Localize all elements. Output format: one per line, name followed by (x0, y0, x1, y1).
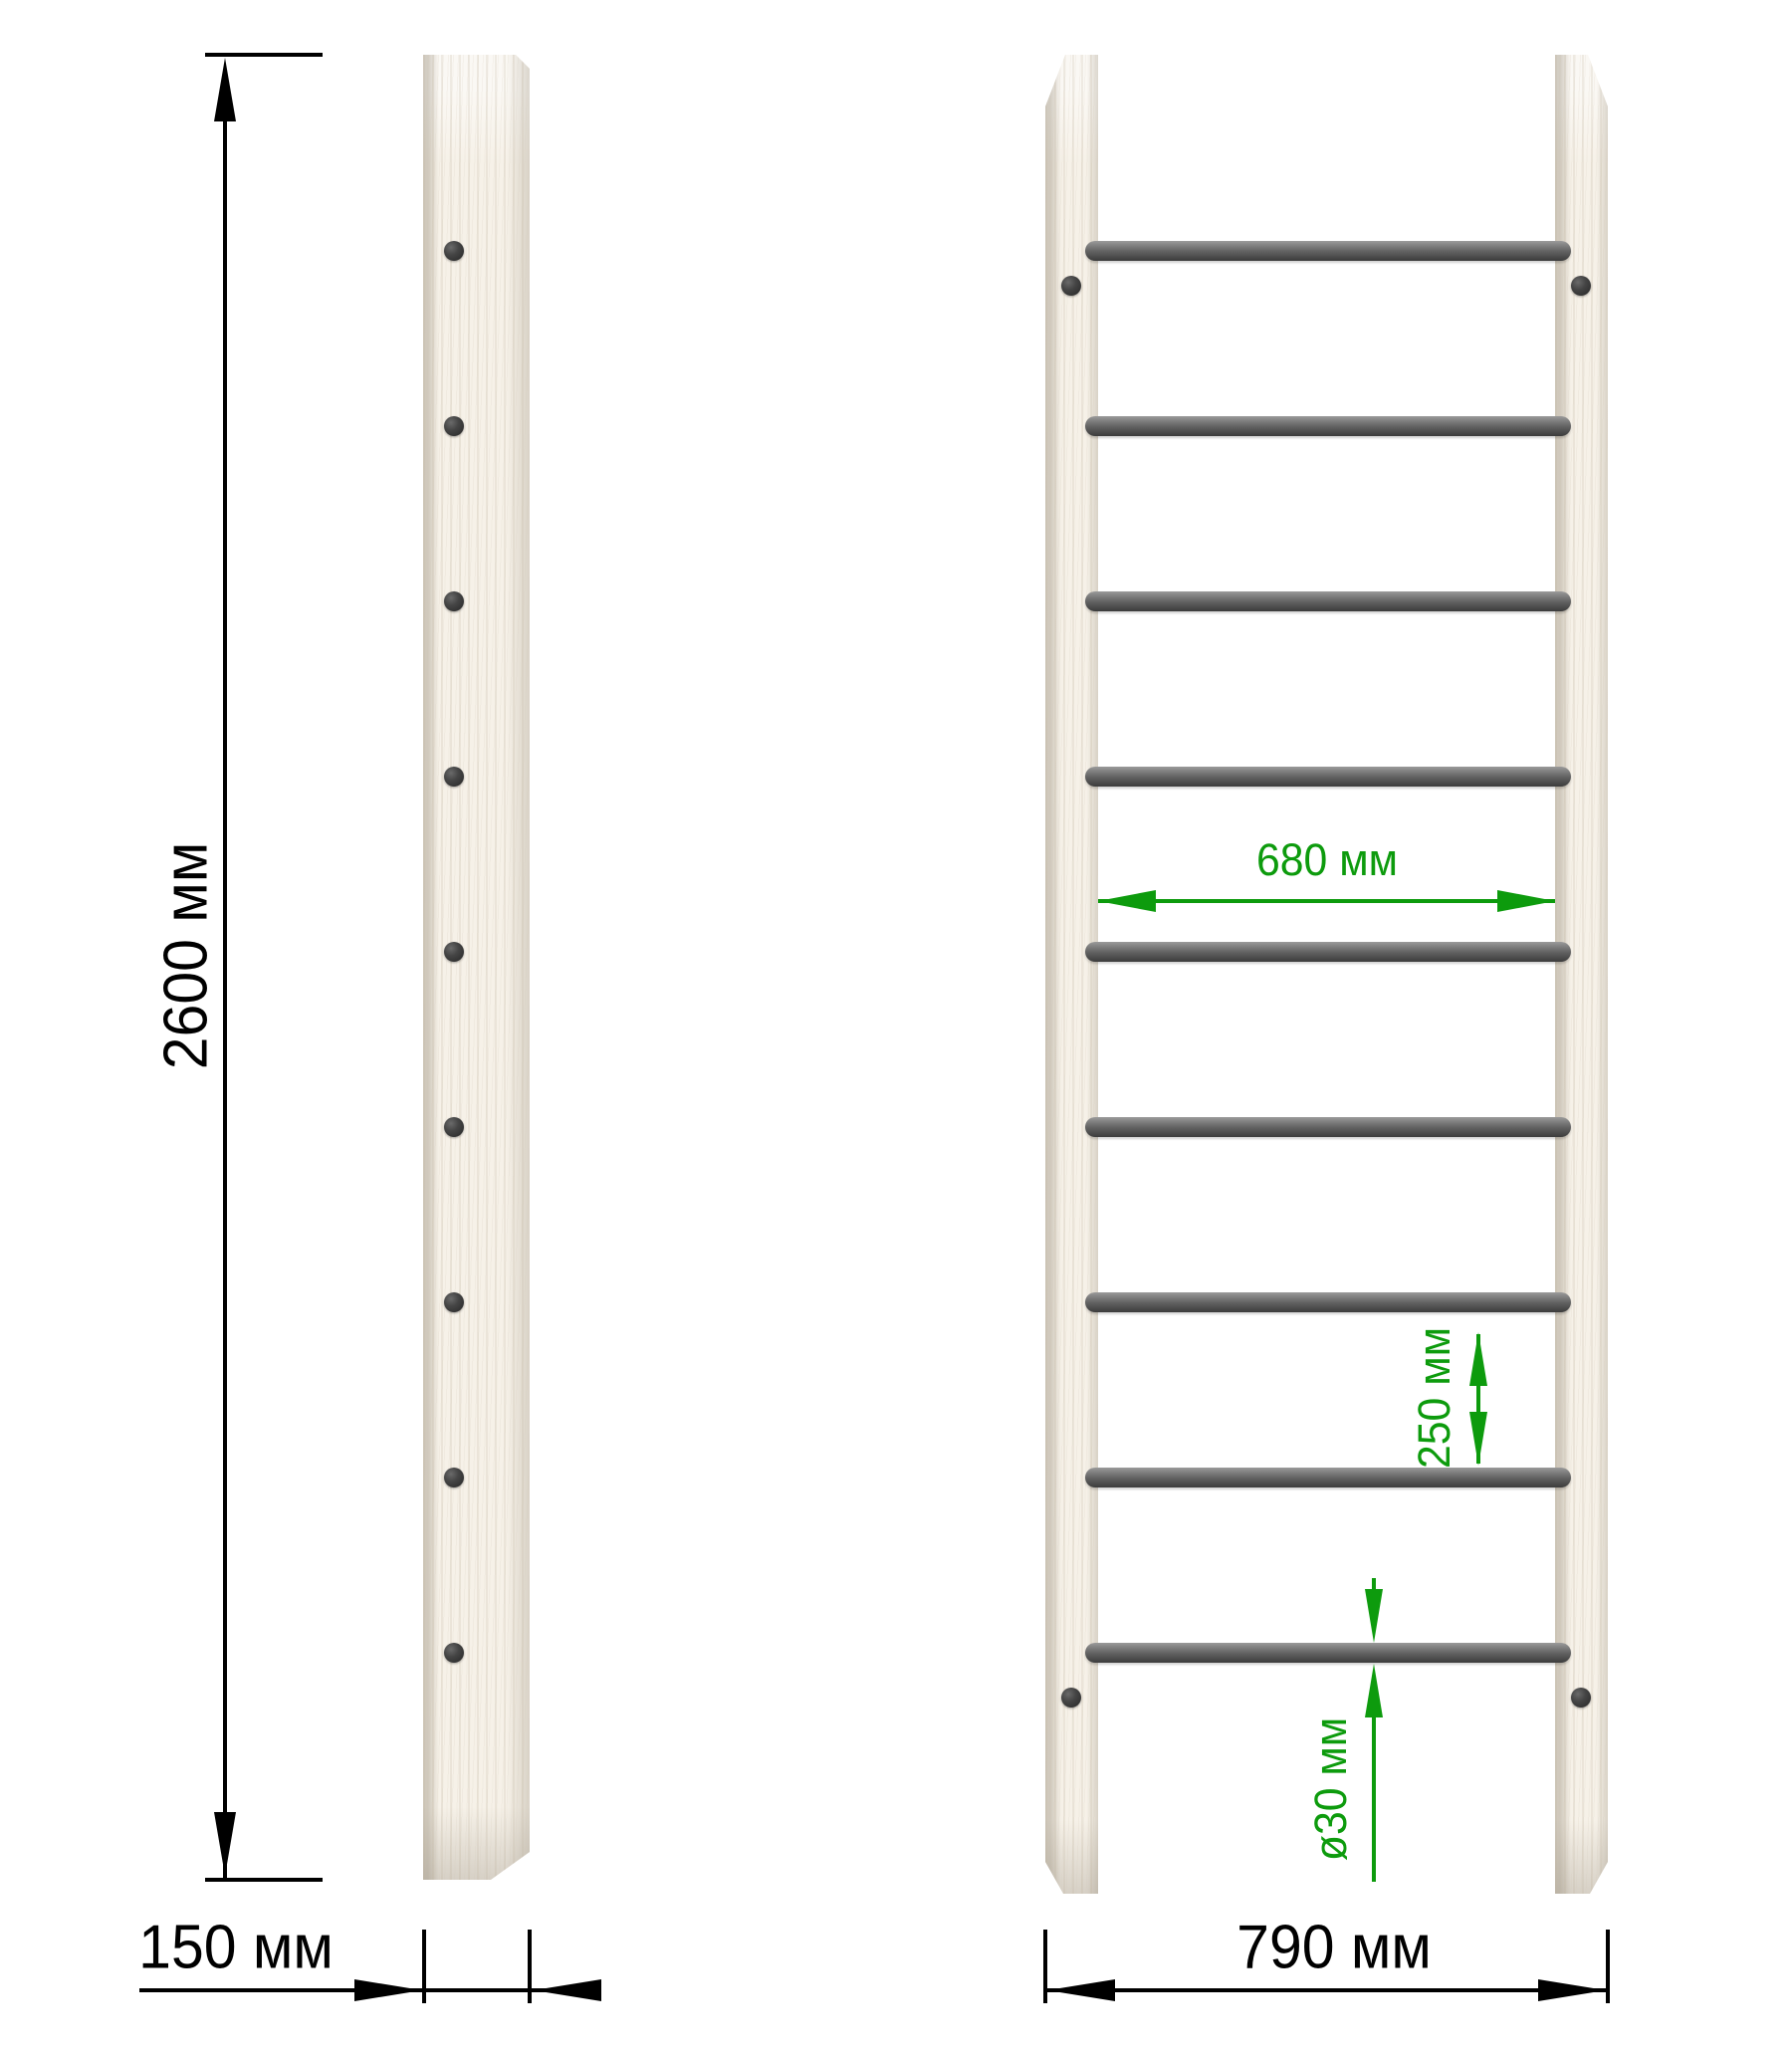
side-view-post (423, 55, 530, 1880)
side-screw-icon (444, 241, 464, 261)
rung (1085, 942, 1571, 962)
diameter-arrow-up-icon (1365, 1664, 1383, 1717)
depth-arrow-right-icon (354, 1979, 422, 2001)
inner-width-arrow-left-icon (1098, 890, 1156, 912)
mount-screw-icon (1571, 1688, 1591, 1708)
side-screw-icon (444, 1468, 464, 1487)
outer-width-tick-right (1606, 1930, 1610, 2003)
depth-dimension-tick-left (422, 1930, 426, 2003)
rung (1085, 1643, 1571, 1663)
front-view-right-post (1555, 55, 1608, 1894)
side-screw-icon (444, 767, 464, 787)
mount-screw-icon (1061, 276, 1081, 296)
rung (1085, 1468, 1571, 1487)
rung (1085, 241, 1571, 261)
height-dimension-label: 2600 мм (151, 842, 222, 1069)
inner-width-arrow-right-icon (1497, 890, 1555, 912)
inner-width-dimension-label: 680 мм (1256, 834, 1398, 886)
outer-width-arrow-right-icon (1538, 1979, 1606, 2001)
depth-dimension-label: 150 мм (138, 1913, 334, 1983)
side-screw-icon (444, 1292, 464, 1312)
side-screw-icon (444, 1643, 464, 1663)
rung (1085, 591, 1571, 611)
outer-width-tick-left (1043, 1930, 1047, 2003)
mount-screw-icon (1061, 1688, 1081, 1708)
dimension-drawing: 2600 мм 150 мм 680 мм 250 мм ø30 мм 790 … (0, 0, 1792, 2055)
diameter-dimension-label: ø30 мм (1305, 1717, 1357, 1861)
depth-arrow-left-icon (534, 1979, 601, 2001)
side-screw-icon (444, 416, 464, 436)
diameter-dimension-lower-line (1372, 1714, 1376, 1882)
height-dimension-bottom-tick (205, 1878, 323, 1882)
height-dimension-top-tick (205, 53, 323, 57)
mount-screw-icon (1571, 276, 1591, 296)
inner-width-dimension-line (1098, 899, 1555, 903)
depth-dimension-tick-right (528, 1930, 532, 2003)
diameter-arrow-down-icon (1365, 1589, 1383, 1643)
rung (1085, 416, 1571, 436)
height-arrow-up-icon (214, 58, 236, 121)
height-arrow-down-icon (214, 1812, 236, 1876)
outer-width-dimension-line (1045, 1988, 1608, 1992)
side-screw-icon (444, 942, 464, 962)
outer-width-dimension-label: 790 мм (1236, 1913, 1432, 1983)
front-view-left-post (1045, 55, 1098, 1894)
height-dimension-line (223, 75, 227, 1878)
rung (1085, 767, 1571, 787)
side-screw-icon (444, 1117, 464, 1137)
spacing-arrow-down-icon (1469, 1412, 1487, 1466)
rung (1085, 1117, 1571, 1137)
outer-width-arrow-left-icon (1047, 1979, 1115, 2001)
spacing-arrow-up-icon (1469, 1332, 1487, 1386)
side-screw-icon (444, 591, 464, 611)
rung (1085, 1292, 1571, 1312)
spacing-dimension-label: 250 мм (1409, 1327, 1460, 1469)
